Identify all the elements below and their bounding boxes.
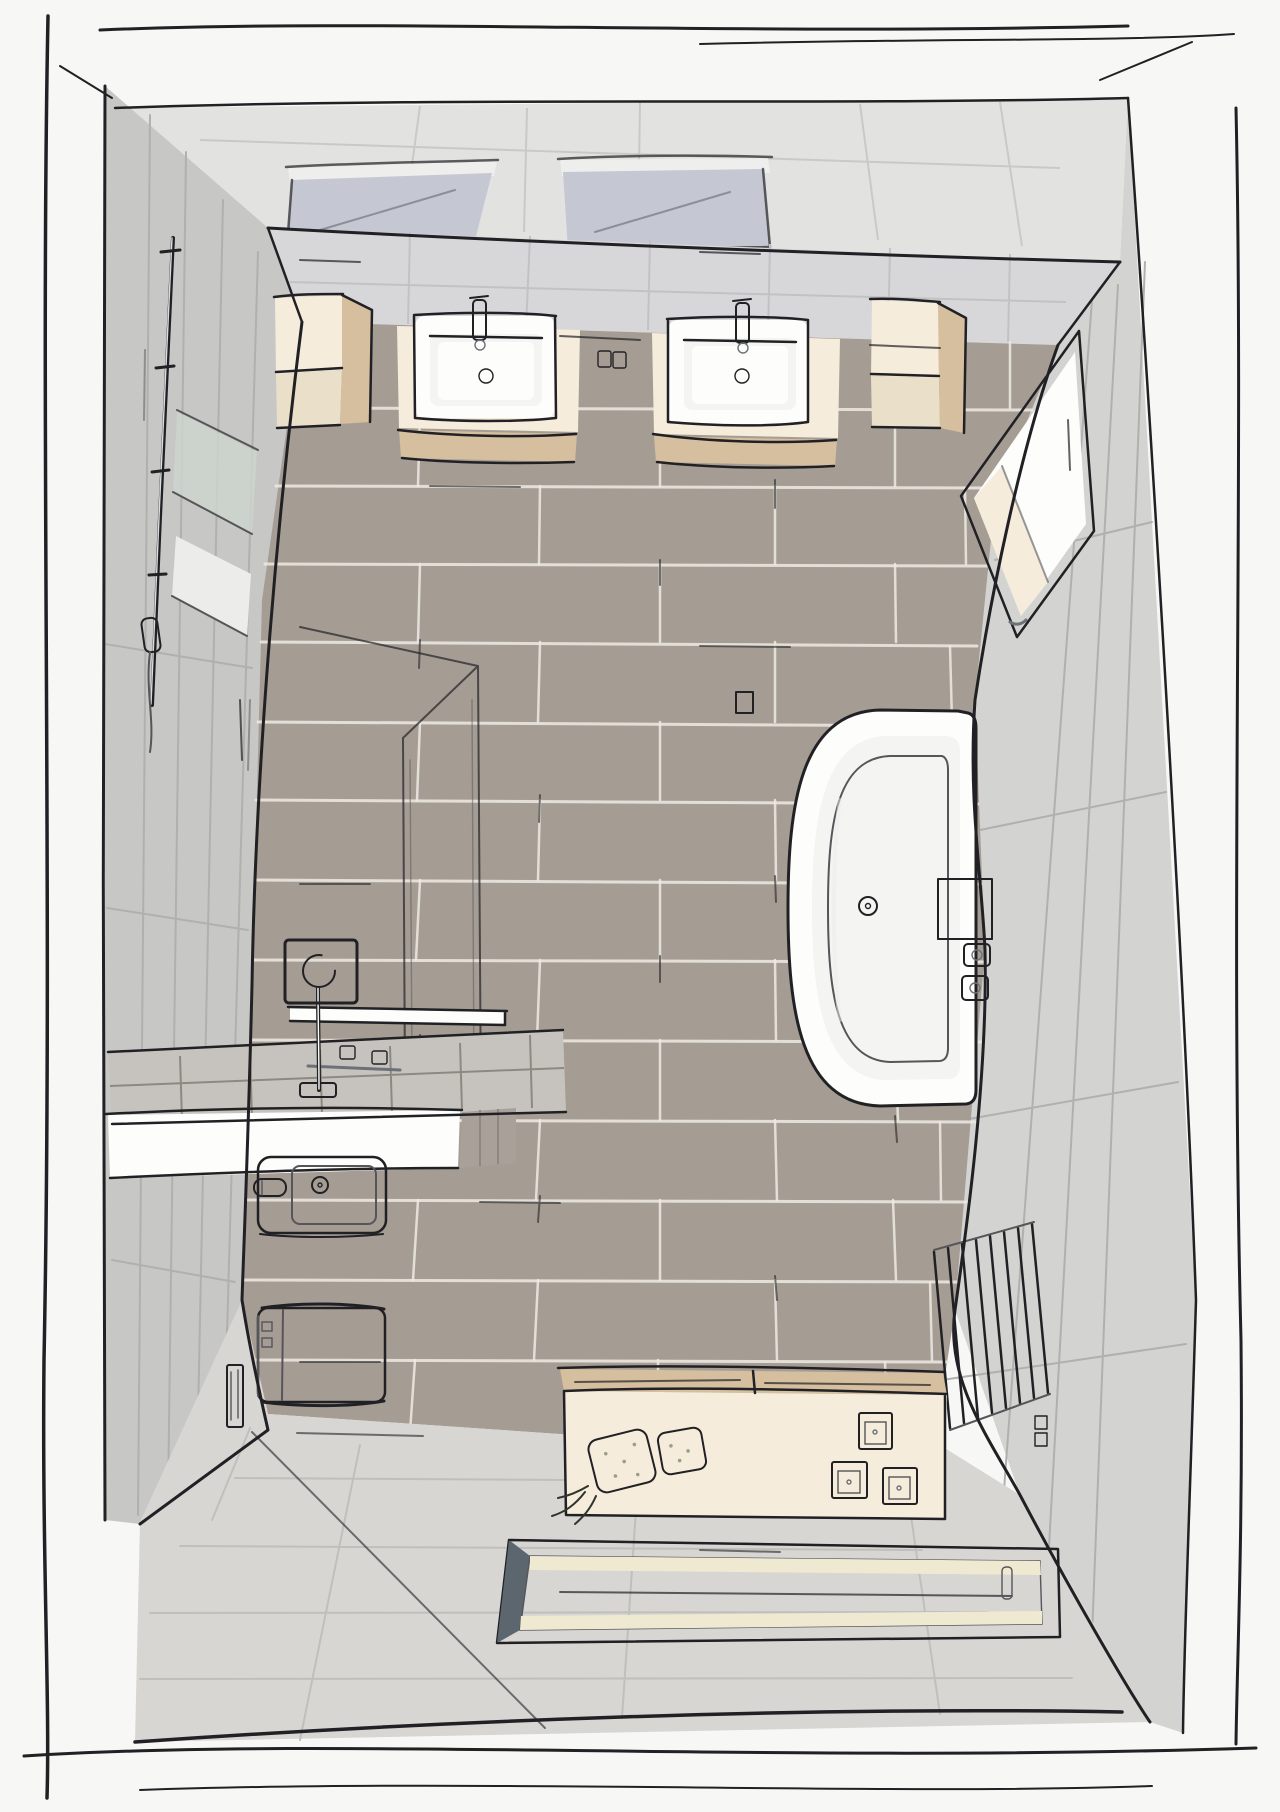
bathroom-sketch-page <box>0 0 1280 1812</box>
border-bottom-1 <box>24 1748 1256 1756</box>
sink-left-basin <box>438 342 534 400</box>
storage-bench <box>552 1366 947 1524</box>
cabinet-right <box>870 299 966 433</box>
sink-right-basin <box>692 346 788 404</box>
shower-shelf <box>288 1007 507 1025</box>
left-wall-outer-line <box>103 86 105 1520</box>
skylight-glass <box>563 169 770 250</box>
cabinet-side <box>938 303 966 433</box>
cabinet-front <box>871 376 940 428</box>
cabinet-top <box>275 295 342 374</box>
bench-seat <box>564 1391 947 1519</box>
bathroom-rendering <box>0 0 1280 1812</box>
border-top-2 <box>700 34 1234 44</box>
cabinet-top <box>871 300 939 378</box>
border-left <box>44 16 48 1798</box>
border-bottom-2 <box>140 1786 1152 1790</box>
border-right <box>1236 108 1241 1744</box>
skylight-right <box>558 156 772 250</box>
cabinet-front <box>276 370 342 428</box>
vanity-left <box>397 296 580 463</box>
bench-end-side <box>460 1108 516 1168</box>
cabinet-side <box>340 295 372 424</box>
border-corner-ticks <box>60 42 1192 98</box>
border-top-1 <box>100 26 1128 30</box>
cabinet-left <box>274 294 372 428</box>
